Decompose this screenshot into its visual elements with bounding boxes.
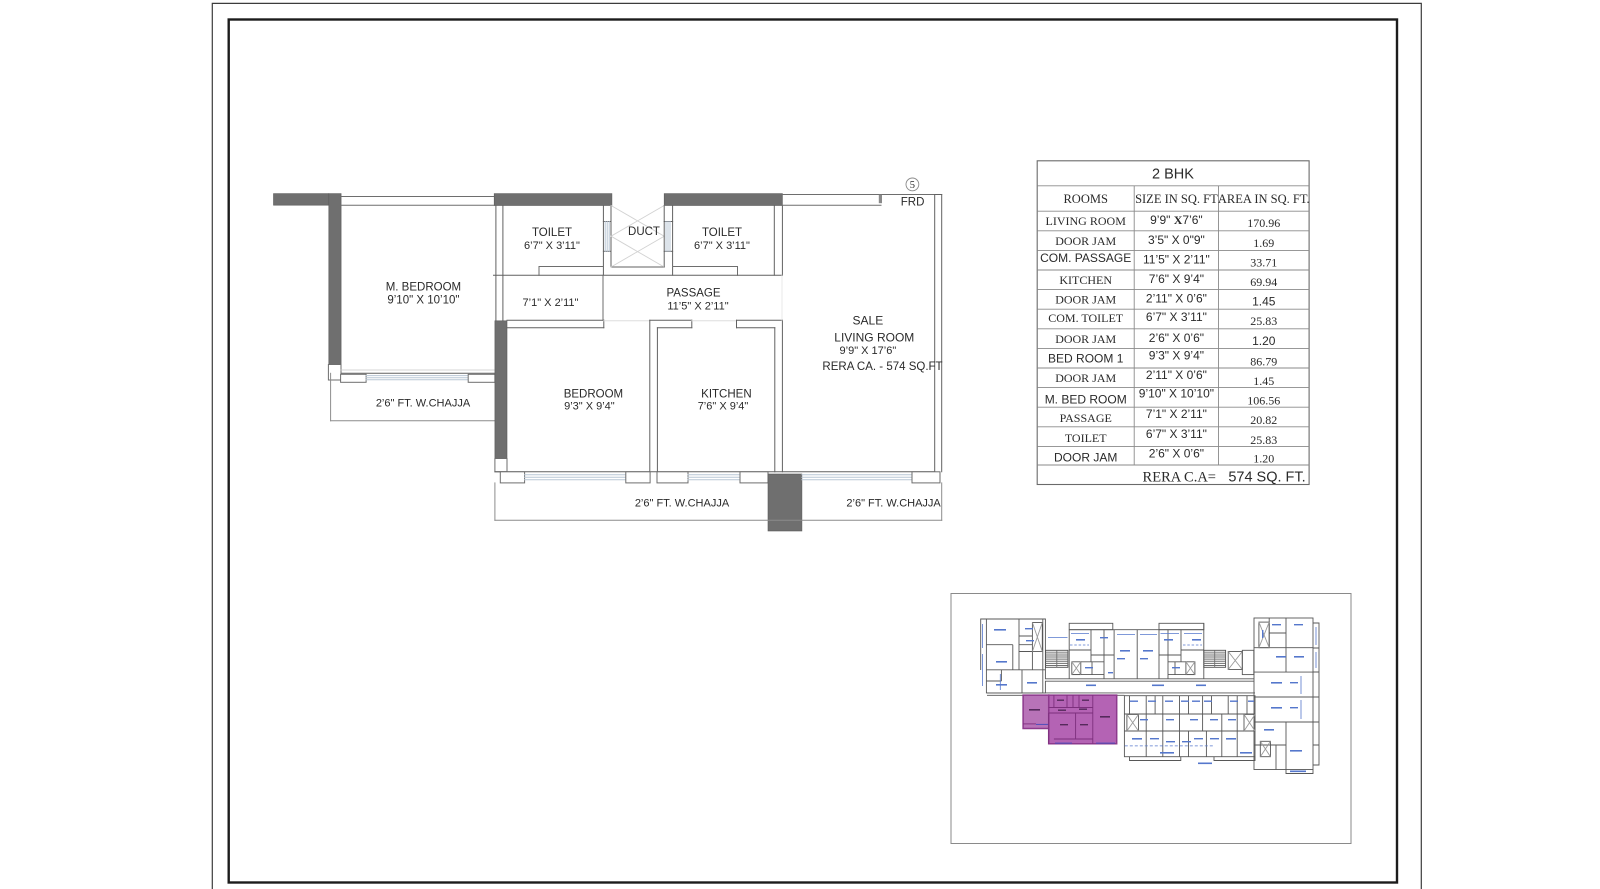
svg-text:DOOR JAM: DOOR JAM [1054,450,1117,464]
svg-text:1.45: 1.45 [1252,295,1276,309]
svg-text:1.20: 1.20 [1252,334,1276,348]
svg-text:2’6" FT. W.CHAJJA: 2’6" FT. W.CHAJJA [635,498,730,510]
svg-text:3’5" X 0"9": 3’5" X 0"9" [1148,233,1205,247]
svg-text:DOOR JAM: DOOR JAM [1055,234,1116,248]
svg-text:DOOR JAM: DOOR JAM [1055,332,1116,346]
svg-text:M. BEDROOM: M. BEDROOM [386,282,461,294]
svg-text:SIZE IN SQ. FT: SIZE IN SQ. FT [1135,192,1218,206]
svg-text:7’1" X 2’11": 7’1" X 2’11" [523,297,579,309]
svg-text:7’1" X 2’11": 7’1" X 2’11" [1146,407,1207,421]
svg-text:M. BED ROOM: M. BED ROOM [1045,393,1127,407]
svg-text:KITCHEN: KITCHEN [701,388,751,400]
svg-text:RERA C.A=: RERA C.A= [1143,470,1216,486]
svg-text:106.56: 106.56 [1247,394,1280,408]
svg-text:9’9" X 17’6": 9’9" X 17’6" [840,345,897,357]
svg-text:LIVING ROOM: LIVING ROOM [1046,214,1127,228]
svg-text:2’11" X 0’6": 2’11" X 0’6" [1146,292,1207,306]
svg-text:6’7" X 3’11": 6’7" X 3’11" [1146,427,1207,441]
svg-text:25.83: 25.83 [1250,314,1277,328]
svg-text:TOILET: TOILET [1065,431,1107,445]
svg-text:2 BHK: 2 BHK [1152,167,1194,183]
svg-text:KITCHEN: KITCHEN [1059,273,1112,287]
svg-text:FRD: FRD [901,197,925,209]
svg-text:9’3" X 9’4": 9’3" X 9’4" [1149,348,1204,362]
svg-text:LIVING ROOM: LIVING ROOM [834,331,914,345]
svg-text:DOOR JAM: DOOR JAM [1055,371,1116,385]
svg-text:1.69: 1.69 [1253,236,1274,250]
svg-text:2’6" X 0’6": 2’6" X 0’6" [1149,331,1204,345]
svg-text:69.94: 69.94 [1250,275,1277,289]
svg-text:6’7" X 3’11": 6’7" X 3’11" [524,240,580,252]
svg-text:TOILET: TOILET [532,227,572,239]
svg-text:BEDROOM: BEDROOM [564,388,623,400]
svg-text:20.82: 20.82 [1250,413,1277,427]
svg-text:PASSAGE: PASSAGE [666,287,720,299]
svg-text:SALE: SALE [853,314,884,328]
svg-text:86.79: 86.79 [1250,354,1277,368]
svg-text:9’3" X 9’4": 9’3" X 9’4" [564,401,615,413]
svg-text:COM. PASSAGE: COM. PASSAGE [1040,251,1131,265]
svg-text:1.20: 1.20 [1253,451,1274,465]
svg-text:33.71: 33.71 [1250,255,1277,269]
svg-text:6’7" X 3’11": 6’7" X 3’11" [694,240,750,252]
svg-text:1.45: 1.45 [1253,374,1274,388]
svg-text:2’11" X 0’6": 2’11" X 0’6" [1146,368,1207,382]
svg-text:AREA IN SQ. FT.: AREA IN SQ. FT. [1218,192,1310,206]
svg-text:2’6" X 0’6": 2’6" X 0’6" [1149,446,1204,460]
svg-text:9’9" X7’6": 9’9" X7’6" [1150,213,1203,227]
svg-text:11’5" X 2’11": 11’5" X 2’11" [667,300,728,312]
svg-text:TOILET: TOILET [702,227,742,239]
svg-text:ROOMS: ROOMS [1063,192,1108,206]
svg-text:DOOR JAM: DOOR JAM [1055,293,1116,307]
svg-text:7’6" X 9’4": 7’6" X 9’4" [1149,272,1204,286]
svg-text:6’7" X 3’11": 6’7" X 3’11" [1146,310,1207,324]
svg-text:BED ROOM 1: BED ROOM 1 [1048,351,1124,365]
svg-text:2’6" FT. W.CHAJJA: 2’6" FT. W.CHAJJA [846,497,941,509]
svg-text:574 SQ. FT.: 574 SQ. FT. [1228,470,1305,486]
svg-text:9’10" X 10’10": 9’10" X 10’10" [387,294,459,306]
svg-text:7’6" X 9’4": 7’6" X 9’4" [698,401,749,413]
svg-text:5: 5 [910,180,915,191]
svg-text:RERA CA. - 574 SQ.FT: RERA CA. - 574 SQ.FT [822,361,942,373]
svg-text:25.83: 25.83 [1250,433,1277,447]
svg-text:170.96: 170.96 [1247,216,1280,230]
svg-text:9’10" X 10’10": 9’10" X 10’10" [1139,387,1214,401]
svg-text:DUCT: DUCT [628,226,660,238]
svg-text:PASSAGE: PASSAGE [1060,411,1112,425]
svg-text:COM. TOILET: COM. TOILET [1048,311,1124,325]
svg-text:11’5" X 2’11": 11’5" X 2’11" [1143,252,1210,266]
svg-text:2’6" FT. W.CHAJJA: 2’6" FT. W.CHAJJA [376,397,471,409]
